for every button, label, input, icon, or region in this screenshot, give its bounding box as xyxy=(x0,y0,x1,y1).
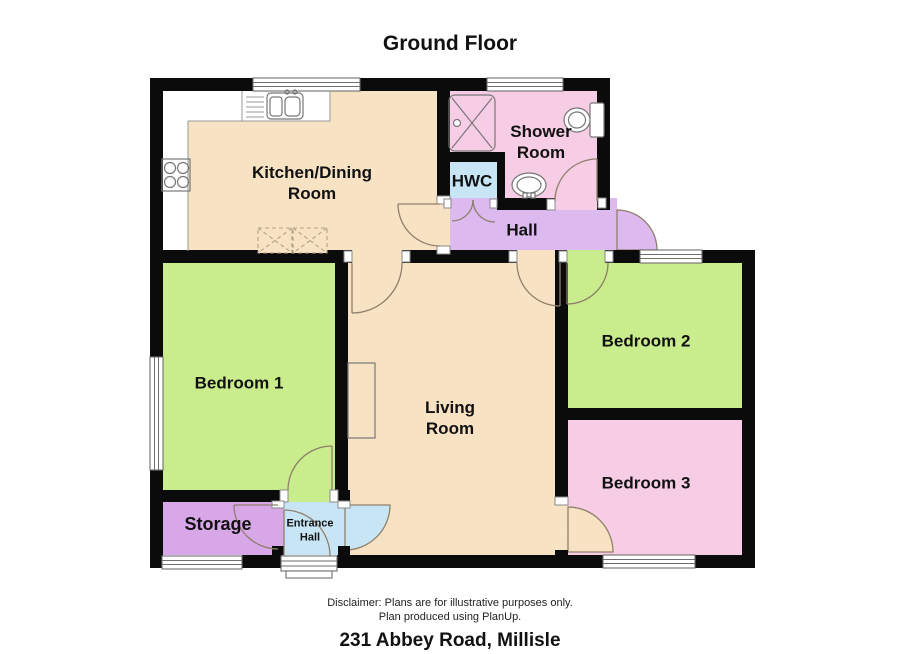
hall-external-door-swing xyxy=(617,210,657,250)
jamb xyxy=(338,501,350,508)
jamb xyxy=(559,251,567,262)
label-bedroom2: Bedroom 2 xyxy=(602,330,691,351)
wall-segment xyxy=(360,78,487,91)
wall-segment xyxy=(150,470,163,568)
opening-bedroom3 xyxy=(555,505,568,552)
window-bedroom1 xyxy=(150,357,163,470)
window-bedroom2 xyxy=(640,250,702,263)
jamb xyxy=(605,251,613,262)
window-shower xyxy=(487,78,563,91)
wall-segment xyxy=(150,490,288,502)
label-bedroom1: Bedroom 1 xyxy=(195,372,284,393)
jamb xyxy=(280,490,288,502)
appliance-space xyxy=(293,228,327,253)
front-door-step xyxy=(286,571,332,578)
opening-bedroom1 xyxy=(288,490,332,502)
wall-segment xyxy=(150,78,253,91)
address: 231 Abbey Road, Millisle xyxy=(339,630,560,652)
jamb xyxy=(437,246,450,254)
label-kitchen: Kitchen/Dining Room xyxy=(252,162,372,205)
appliance-space xyxy=(258,228,292,253)
opening-kitchen-hall xyxy=(437,204,450,246)
label-bedroom3: Bedroom 3 xyxy=(602,472,691,493)
jamb xyxy=(555,497,568,505)
front-door xyxy=(281,556,337,571)
opening-kitchen-living xyxy=(352,250,402,263)
wall-segment xyxy=(555,408,755,420)
wall-segment xyxy=(402,250,517,263)
wall-segment xyxy=(150,78,163,357)
kitchen-sink xyxy=(246,90,303,119)
wall-segment xyxy=(597,78,610,210)
kitchen-hob xyxy=(162,159,190,191)
floorplan-drawing xyxy=(0,0,900,654)
wall-segment xyxy=(242,555,282,568)
label-entrance-hall: Entrance Hall xyxy=(286,517,333,546)
disclaimer-line-2: Plan produced using PlanUp. xyxy=(379,611,521,623)
floorplan-page: Ground Floor Kitchen/Dining Room Shower … xyxy=(0,0,900,654)
wall-segment xyxy=(497,152,505,210)
wall-segment xyxy=(272,546,284,555)
label-hwc: HWC xyxy=(452,170,493,191)
wall-segment xyxy=(335,263,348,490)
opening-storage xyxy=(272,507,284,546)
wall-segment xyxy=(150,555,162,568)
jamb xyxy=(330,490,338,502)
wall-segment xyxy=(437,152,505,162)
basin xyxy=(512,173,546,198)
window-storage xyxy=(162,556,242,569)
opening-hall-living xyxy=(517,250,560,263)
wall-segment xyxy=(337,555,603,568)
jamb xyxy=(509,251,517,262)
jamb xyxy=(344,251,352,262)
label-storage: Storage xyxy=(184,513,251,536)
label-living: Living Room xyxy=(425,397,475,440)
disclaimer-line-1: Disclaimer: Plans are for illustrative p… xyxy=(327,597,573,609)
wall-segment xyxy=(437,91,450,204)
label-shower: Shower Room xyxy=(510,121,571,164)
window-kitchen xyxy=(253,78,360,91)
wall-segment xyxy=(695,555,755,568)
window-bedroom3 xyxy=(603,555,695,568)
plan-title: Ground Floor xyxy=(383,32,517,56)
jamb xyxy=(402,251,410,262)
jamb xyxy=(598,198,606,208)
wall-segment xyxy=(555,263,568,505)
wall-segment xyxy=(338,546,350,555)
jamb xyxy=(444,199,451,208)
opening-shower-hall xyxy=(555,198,597,210)
opening-hall-bedroom2 xyxy=(567,250,608,263)
label-hall: Hall xyxy=(506,219,537,240)
jamb xyxy=(490,199,497,208)
jamb xyxy=(547,199,555,210)
